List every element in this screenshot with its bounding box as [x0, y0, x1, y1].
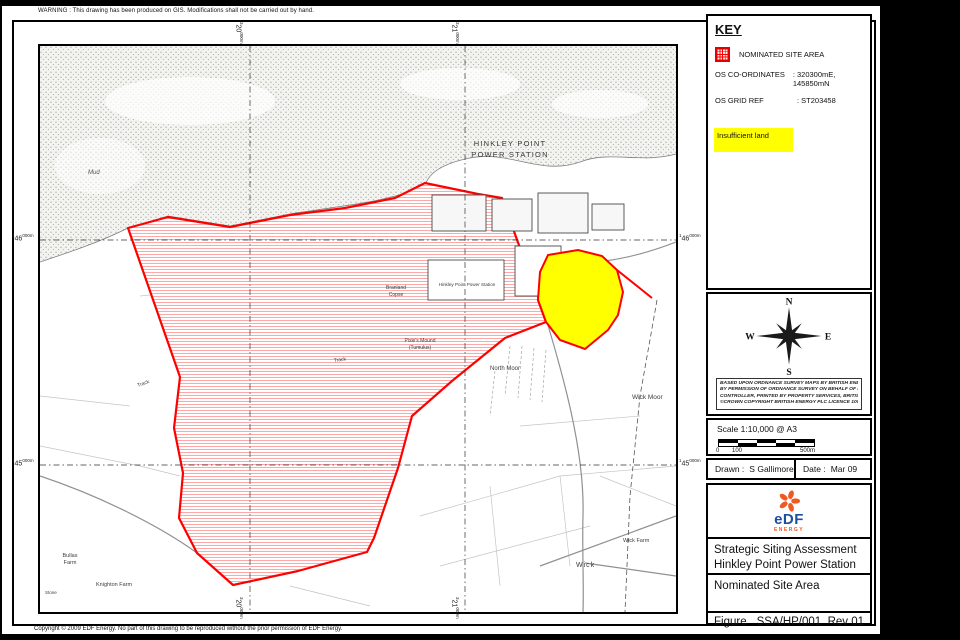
map-label: Hinkley Point Power Station — [439, 282, 496, 287]
map-label: Pixie's Mound — [405, 338, 436, 344]
map-label: Wick Moor — [632, 394, 664, 401]
map-label: Stone — [45, 590, 57, 595]
map-label: Wick — [576, 562, 595, 569]
credit-line: BY PERMISSION OF ORDNANCE SURVEY ON BEHA… — [720, 387, 858, 393]
sea-patch — [400, 68, 520, 100]
scale-bar-segment — [795, 443, 814, 446]
scale-panel: Scale 1:10,000 @ A3 0 100 500m — [706, 418, 872, 456]
sea-patch — [105, 77, 275, 125]
os-coordinates-value: : 320300mE, 145850mN — [793, 70, 870, 88]
os-grid-ref-row: OS GRID REF : ST203458 — [715, 96, 870, 105]
drawn-label: Drawn : — [715, 464, 744, 474]
date-value: Mar 09 — [831, 464, 857, 474]
edf-flame-icon — [774, 490, 804, 512]
legend-row: NOMINATED SITE AREA — [715, 47, 870, 62]
edf-logo-text: eDF — [774, 512, 804, 527]
mud-patch — [55, 138, 145, 194]
sea-patch — [552, 90, 648, 118]
os-coordinates-label: OS CO-ORDINATES — [715, 70, 793, 88]
map-label: Wick Farm — [623, 538, 650, 544]
scale-tick-500: 500m — [800, 448, 815, 454]
figure-row: Figure SSA/HP/001 Rev 01 — [708, 611, 870, 631]
revision-number: Rev 01 — [828, 616, 864, 628]
scale-tick-100: 100 — [732, 448, 742, 454]
drawn-date-panel: Drawn : S Gallimore Date : Mar 09 — [706, 458, 872, 480]
nominated-site-swatch-icon — [715, 47, 730, 62]
map-label: HINKLEY POINT — [474, 139, 547, 148]
map-label: (Tumulus) — [409, 345, 432, 351]
compass-w-label: W — [745, 332, 755, 342]
scale-bar-segment — [719, 443, 738, 446]
map-label: POWER STATION — [471, 150, 548, 159]
drawing-sheet: WARNING : This drawing has been produced… — [0, 0, 960, 640]
project-title-section: Strategic Siting Assessment Hinkley Poin… — [708, 537, 870, 573]
copyright-text: Copyright © 2009 EDF Energy. No part of … — [34, 626, 342, 632]
project-line-1: Strategic Siting Assessment — [714, 543, 870, 558]
insufficient-land-note: Insufficient land — [714, 128, 793, 152]
drawing-title-section: Nominated Site Area — [708, 573, 870, 611]
date-label: Date : — [803, 464, 826, 474]
map-label: Farm — [64, 560, 77, 566]
compass-panel: N E S W BASED UPON ORDNANCE SURVEY MAPS … — [706, 292, 872, 416]
key-title: KEY — [715, 22, 870, 37]
edf-logo-subtext: ENERGY — [774, 528, 804, 533]
warning-text: WARNING : This drawing has been produced… — [38, 8, 314, 14]
edf-logo: eDF ENERGY — [708, 485, 870, 537]
ordnance-survey-credit: BASED UPON ORDNANCE SURVEY MAPS BY BRITI… — [716, 378, 862, 410]
map-canvas: HINKLEY POINTPOWER STATIONMudBranlandCop… — [40, 46, 676, 612]
figure-label: Figure — [714, 616, 747, 628]
map-label: Copse — [389, 292, 404, 298]
map-label: Mud — [88, 170, 100, 176]
os-grid-ref-value: : ST203458 — [797, 96, 836, 105]
figure-number: SSA/HP/001 — [757, 616, 822, 628]
scale-bar-segment — [757, 443, 776, 446]
compass-n-label: N — [786, 298, 793, 308]
scale-tick-0: 0 — [716, 448, 719, 454]
scale-text: Scale 1:10,000 @ A3 — [717, 424, 870, 434]
scale-bar-segment — [776, 443, 795, 446]
map-label: Bullas — [63, 553, 78, 559]
title-block: eDF ENERGY Strategic Siting Assessment H… — [706, 483, 872, 625]
scale-bar-segment — [738, 443, 757, 446]
drawn-cell: Drawn : S Gallimore — [708, 460, 796, 478]
key-panel: KEY NOMINATED SITE AREA OS CO-ORDINATES … — [706, 14, 872, 290]
credit-line: ©CROWN COPYRIGHT BRITISH ENERGY PLC LICE… — [720, 400, 858, 406]
map-label: Branland — [386, 285, 406, 291]
drawing-title: Nominated Site Area — [714, 579, 870, 594]
map-label: Knighton Farm — [96, 582, 132, 588]
scale-bar — [718, 439, 815, 447]
compass-e-label: E — [825, 332, 831, 342]
legend-label: NOMINATED SITE AREA — [739, 50, 824, 59]
drawn-value: S Gallimore — [749, 464, 793, 474]
date-cell: Date : Mar 09 — [796, 460, 870, 478]
map-label: North Moor — [490, 366, 520, 372]
project-line-2: Hinkley Point Power Station — [714, 558, 870, 573]
compass-s-label: S — [786, 368, 791, 376]
os-coordinates-row: OS CO-ORDINATES : 320300mE, 145850mN — [715, 70, 870, 88]
compass-rose-icon: N E S W — [708, 296, 870, 376]
os-grid-ref-label: OS GRID REF — [715, 96, 797, 105]
